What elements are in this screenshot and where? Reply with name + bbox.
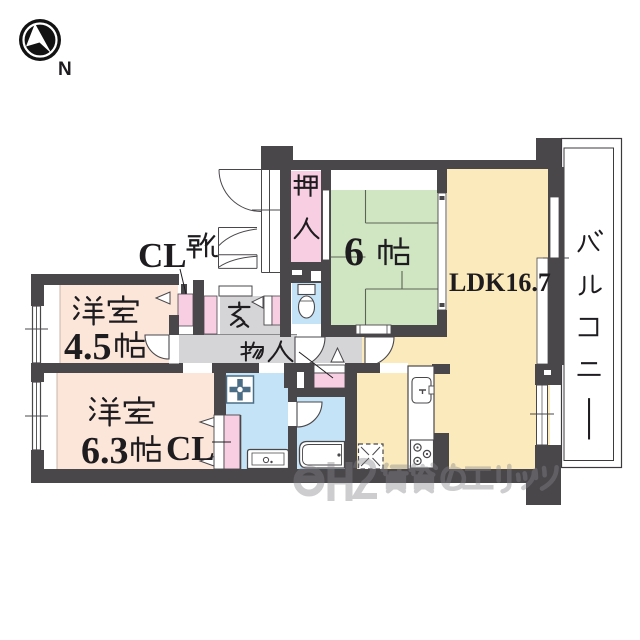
- svg-text:LDK16.7: LDK16.7: [449, 268, 551, 297]
- svg-text:CL: CL: [166, 429, 215, 468]
- svg-text:4.5: 4.5: [64, 326, 112, 368]
- svg-text:6.3: 6.3: [81, 430, 129, 472]
- svg-text:CL: CL: [138, 236, 187, 275]
- svg-text:N: N: [58, 59, 72, 80]
- svg-text:6: 6: [344, 229, 364, 274]
